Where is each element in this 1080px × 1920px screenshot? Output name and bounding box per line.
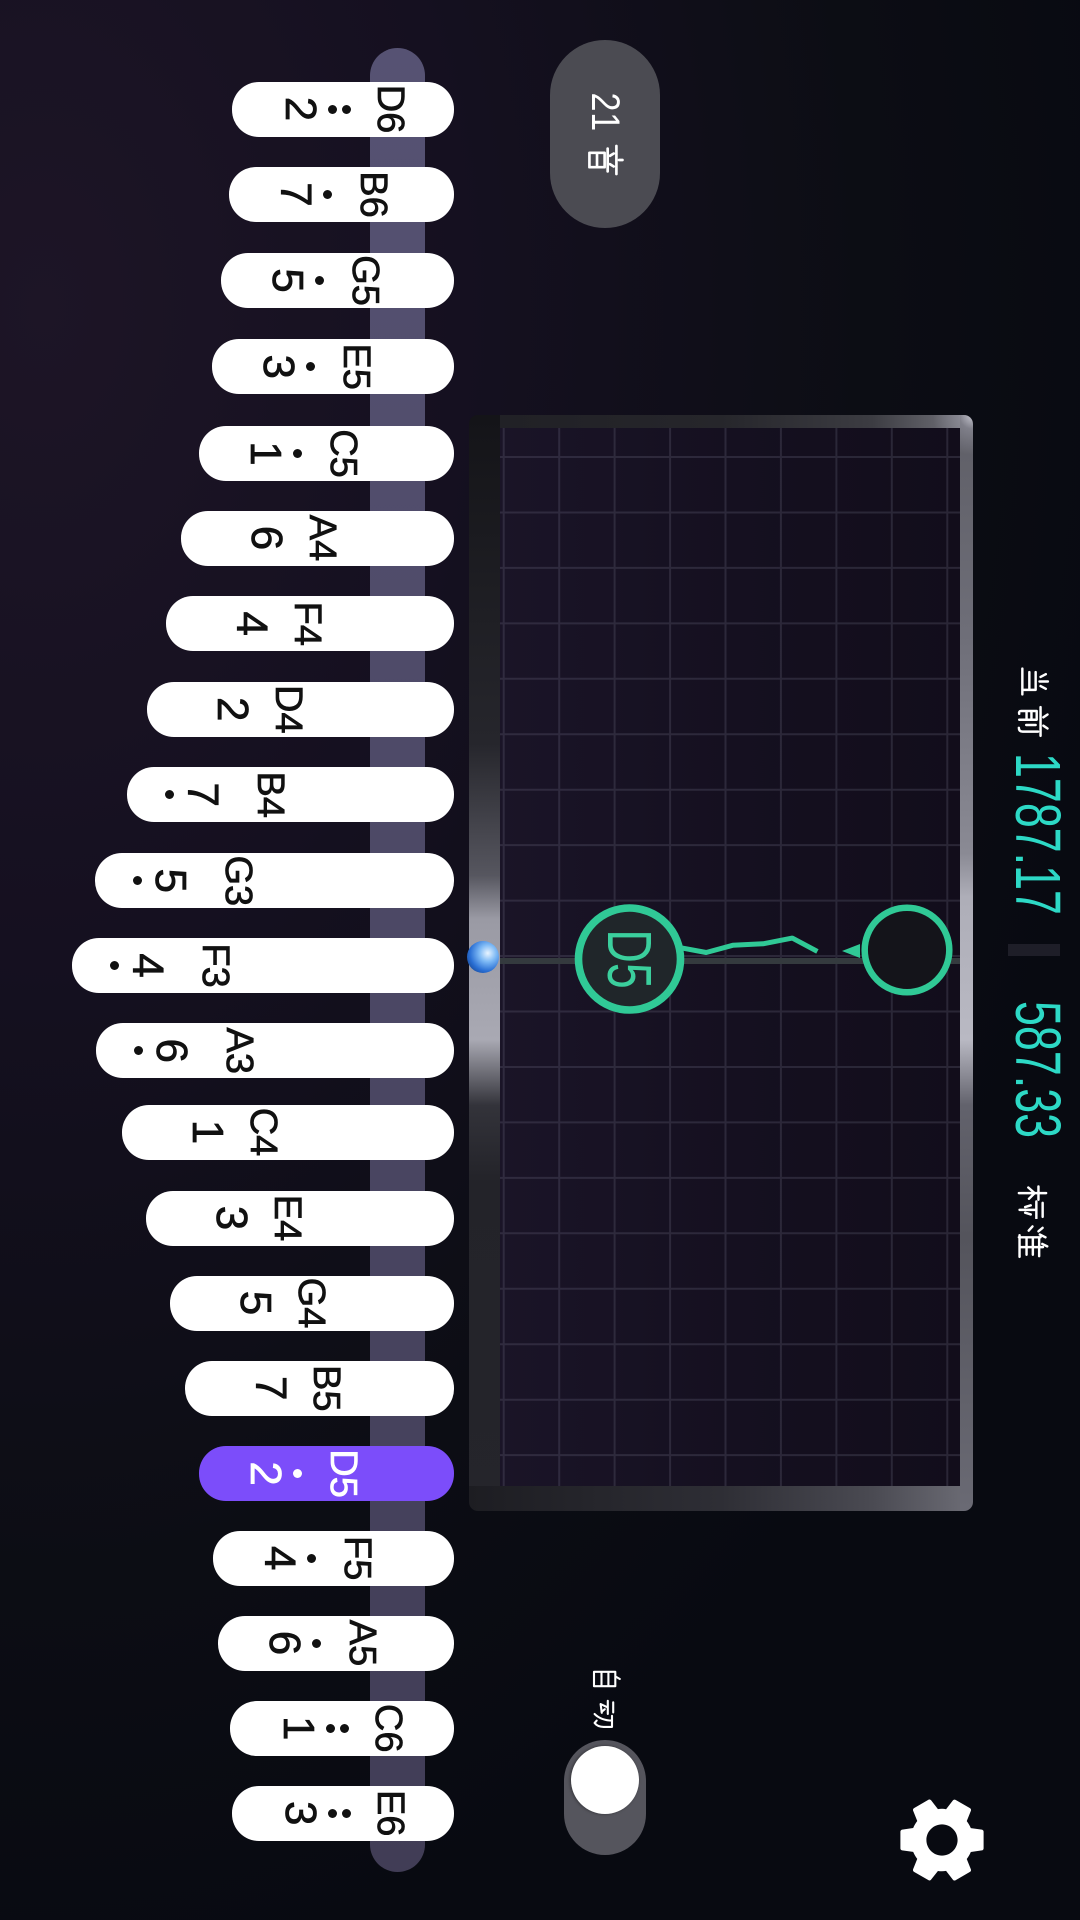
svg-text:D5: D5 [594,929,664,988]
